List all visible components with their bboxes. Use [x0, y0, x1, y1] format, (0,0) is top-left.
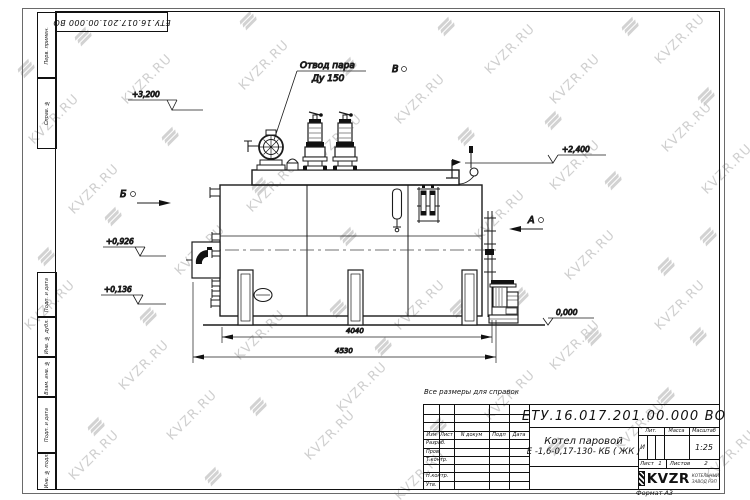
level-mark-3200 — [128, 100, 203, 110]
level-gauge-2 — [417, 185, 440, 223]
drawing-sheet: KVZR.RUKVZR.RUKVZR.RUKVZR.RUKVZR.RUKVZR.… — [0, 0, 750, 500]
tb-header-ndocum: N докум — [454, 431, 489, 439]
kvzr-logo-subtext-line2: ЗАВОД РЭП — [692, 479, 719, 484]
tb-line — [666, 459, 667, 468]
dim-4040-value: 4040 — [346, 327, 364, 335]
safety-valve-2 — [333, 112, 357, 170]
main-steam-valve — [244, 130, 285, 170]
top-right-fittings — [446, 146, 478, 184]
tb-lit-value: И — [638, 435, 647, 459]
kvzr-logo-text: KVZR — [647, 471, 690, 487]
tb-line — [424, 414, 529, 415]
tb-sheets-value: 2 — [702, 459, 710, 468]
level-3200-value: +3,200 — [132, 90, 160, 99]
tb-product-name-line2: Е -1,6-0,17-130- КБ ( ЖК ) — [527, 447, 641, 457]
tb-product-name: Котел паровой Е -1,6-0,17-130- КБ ( ЖК ) — [529, 427, 638, 466]
level-mark-0926 — [103, 247, 166, 256]
view-b-label: Б — [120, 189, 127, 200]
level-0136-value: +0,136 — [104, 285, 132, 294]
view-v-label: В — [392, 64, 399, 75]
view-a-label: А — [527, 215, 535, 226]
dim-4530-value: 4530 — [335, 347, 353, 355]
level-mark-0000 — [543, 318, 594, 325]
tb-header-podp: Подп — [489, 431, 509, 439]
tb-role-nkontr: Н.контр. — [424, 472, 456, 480]
tb-doc-number: ЕТУ.16.017.201.00.000 ВО — [529, 405, 719, 427]
tb-role-tkontr: Т.контр. — [424, 456, 456, 464]
view-arrow-b — [131, 192, 172, 207]
steam-outlet-label-line1: Отвод пара — [300, 61, 355, 71]
kvzr-logo-subtext: КОТЕЛЬНЫЙ ЗАВОД РЭП — [692, 473, 719, 483]
level-0926-value: +0,926 — [106, 237, 134, 246]
tb-product-name-line1: Котел паровой — [544, 436, 622, 447]
tb-line — [647, 435, 648, 459]
tb-scale-value: 1:25 — [689, 435, 719, 459]
tb-header-list: Лист — [439, 431, 454, 439]
view-mark-v — [402, 67, 407, 72]
tb-line — [424, 422, 529, 423]
tb-logo-cell: KVZR КОТЕЛЬНЫЙ ЗАВОД РЭП — [638, 468, 719, 489]
tb-header-data: Дата — [509, 431, 529, 439]
steam-outlet-label-line2: Ду 150 — [311, 74, 345, 84]
tb-role-razrab: Разраб. — [424, 439, 456, 447]
manhole — [254, 289, 272, 302]
support-legs — [238, 270, 477, 325]
view-arrow-a — [509, 218, 544, 233]
tb-massa-label: Масса — [664, 427, 689, 435]
tb-header-izm: Изм — [424, 431, 439, 439]
small-fitting — [287, 159, 298, 170]
level-mark-0136 — [101, 295, 166, 304]
tb-sheet-label: Лист — [640, 459, 654, 468]
level-0000-value: 0,000 — [556, 308, 578, 317]
tb-role-utv: Утв. — [424, 481, 456, 489]
level-mark-2400 — [465, 155, 606, 163]
reference-note: Все размеры для справок — [424, 388, 519, 396]
tb-line — [529, 466, 638, 467]
kvzr-logo-icon — [638, 471, 645, 486]
safety-valve-1 — [303, 112, 327, 170]
tb-sheets-label: Листов — [669, 459, 691, 468]
tb-line — [655, 435, 656, 459]
tb-lit-label: Лит. — [638, 427, 664, 435]
level-gauge-1 — [393, 189, 402, 232]
tb-scale-label: Масштаб — [689, 427, 719, 435]
burner-unit — [186, 242, 220, 278]
tb-role-prov: Пров. — [424, 448, 456, 456]
tb-line — [424, 464, 529, 465]
tb-sheet-value: 1 — [656, 459, 664, 468]
feed-pump-assembly — [489, 280, 518, 323]
title-block: Изм Лист N докум Подп Дата Разраб. Пров.… — [423, 404, 720, 490]
level-2400-value: +2,400 — [562, 145, 590, 154]
format-label: Формат А3 — [636, 489, 673, 497]
